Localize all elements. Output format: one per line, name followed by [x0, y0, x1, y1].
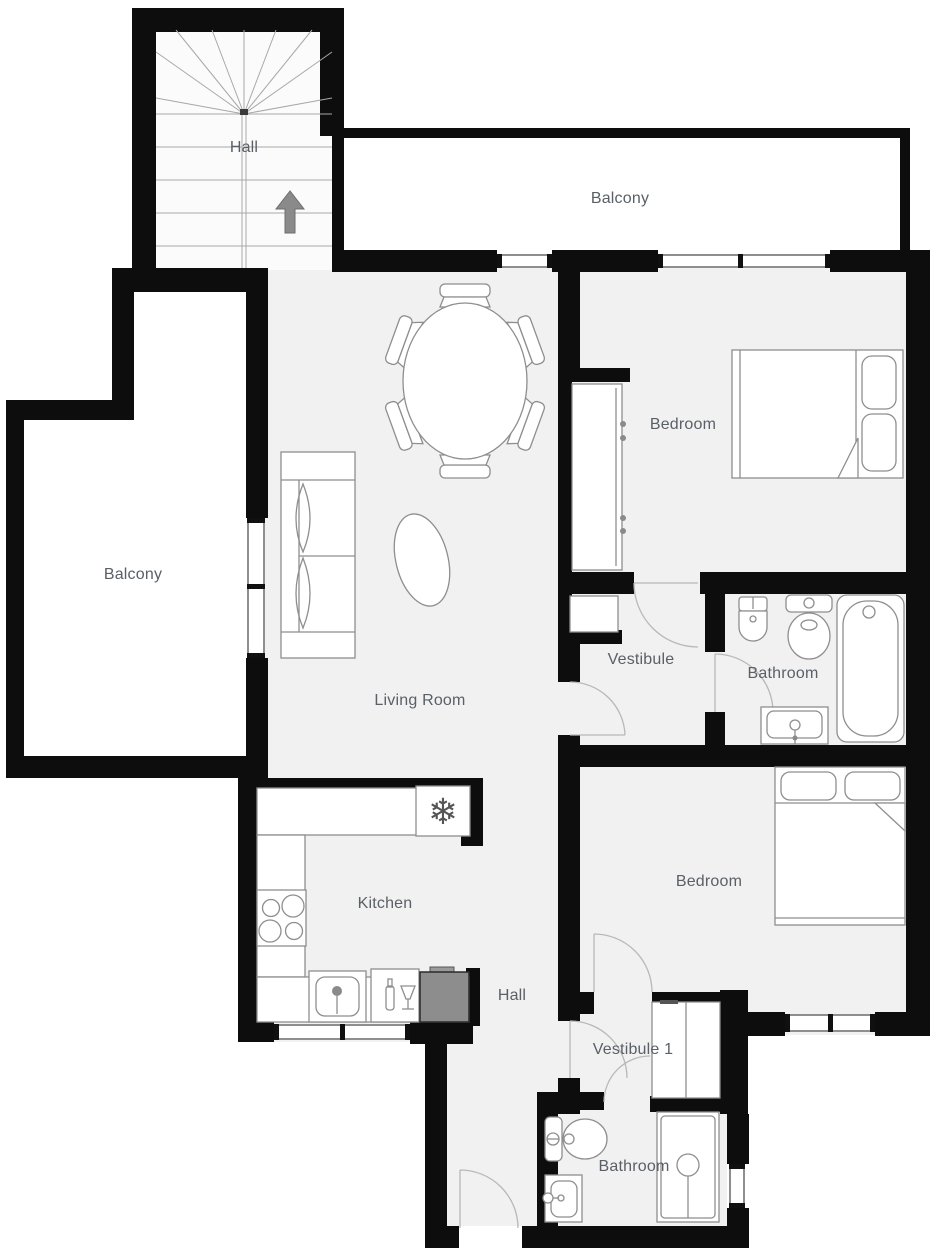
sofa [281, 452, 355, 658]
wardrobe [572, 384, 626, 570]
room-label-bedroom-1: Bedroom [650, 416, 716, 434]
toilet-1 [786, 595, 832, 659]
dark-appliance [420, 967, 469, 1022]
room-label-balcony-left: Balcony [104, 566, 162, 584]
room-label-vestibule: Vestibule [608, 651, 675, 669]
dining-table [384, 284, 546, 478]
room-label-hall-lower: Hall [498, 987, 526, 1005]
door-bedroom2 [594, 934, 652, 992]
fridge: ❄ [416, 786, 470, 836]
doors [460, 583, 773, 1228]
snowflake-icon: ❄ [428, 792, 458, 833]
kitchen-counter-top [257, 788, 418, 835]
stairs-up-arrow-icon [276, 191, 304, 233]
room-label-hall-stairs: Hall [230, 139, 258, 157]
room-label-balcony-top: Balcony [591, 190, 649, 208]
furniture-layer: ❄ [0, 0, 931, 1248]
kitchen-sink [309, 971, 366, 1022]
door-living-to-vestibule [570, 682, 625, 735]
room-label-vestibule-1: Vestibule 1 [593, 1041, 673, 1059]
room-label-bedroom-2: Bedroom [676, 873, 742, 891]
room-label-bathroom-2: Bathroom [599, 1158, 670, 1176]
bed-2 [775, 767, 905, 925]
floor-plan: ❄ [0, 0, 931, 1248]
bed-1 [732, 350, 903, 478]
rug [385, 508, 458, 612]
door-entrance [460, 1170, 518, 1228]
bidet [739, 597, 767, 641]
room-label-bathroom-1: Bathroom [748, 665, 819, 683]
bathroom1-sink [761, 707, 828, 744]
room-label-kitchen: Kitchen [358, 895, 413, 913]
room-label-living-room: Living Room [374, 692, 465, 710]
stove [257, 890, 306, 946]
door-bedroom1 [634, 583, 698, 647]
door-bathroom1 [715, 654, 773, 712]
door-bathroom2 [604, 1056, 650, 1102]
dishwasher [371, 969, 419, 1022]
toilet-2 [545, 1117, 607, 1161]
bathroom2-sink [543, 1175, 582, 1222]
bathtub [837, 595, 904, 742]
vestibule-cabinet [570, 596, 618, 632]
